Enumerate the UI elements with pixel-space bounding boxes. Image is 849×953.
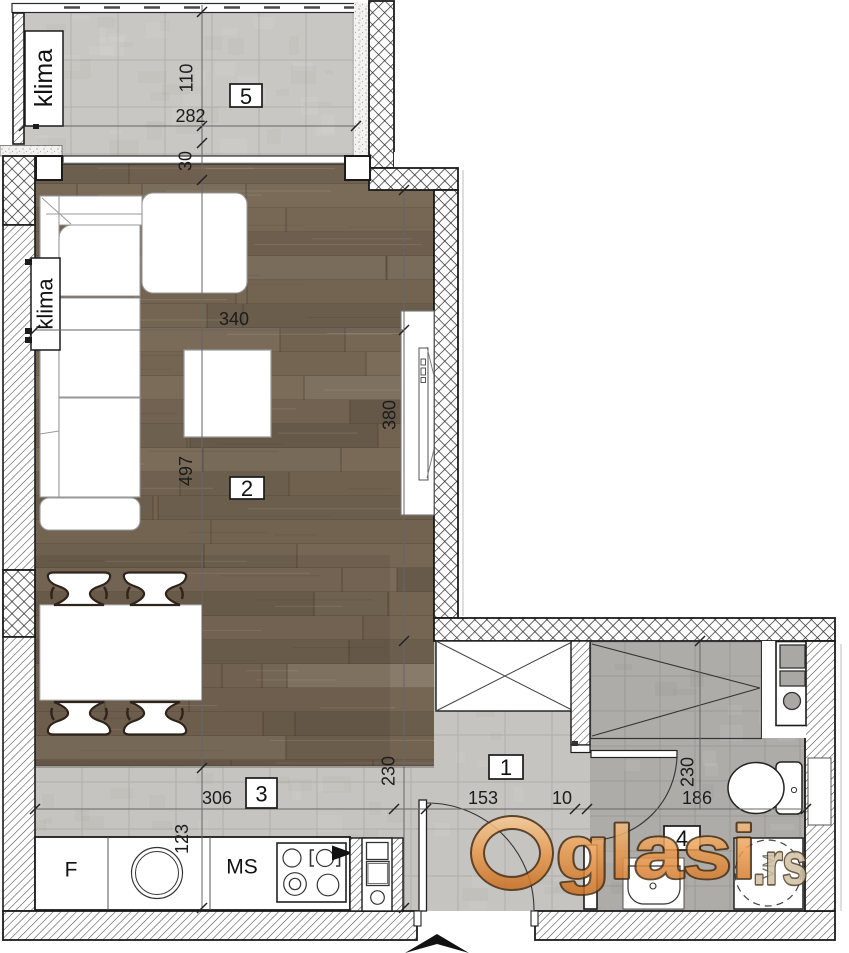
svg-text:3: 3 [255,782,267,807]
svg-text:klima: klima [33,278,58,330]
svg-text:123: 123 [172,824,192,854]
svg-text:110: 110 [177,64,197,93]
svg-text:MS: MS [226,856,258,879]
svg-text:10: 10 [552,788,572,808]
svg-text:1: 1 [500,755,512,780]
svg-text:glasi: glasi [556,810,756,894]
svg-text:2: 2 [241,476,253,501]
svg-text:230: 230 [678,757,698,787]
svg-text:306: 306 [202,788,232,808]
svg-text:186: 186 [682,788,712,808]
svg-text:153: 153 [468,788,498,808]
svg-text:5: 5 [240,84,252,109]
svg-text:340: 340 [219,309,249,329]
svg-text:30: 30 [176,151,196,171]
svg-text:F: F [65,859,78,882]
svg-text:230: 230 [379,756,399,786]
svg-text:282: 282 [175,106,205,126]
svg-text:klima: klima [30,49,58,107]
svg-text:497: 497 [176,456,196,486]
svg-text:380: 380 [380,400,400,430]
svg-text:.rs: .rs [753,832,807,897]
